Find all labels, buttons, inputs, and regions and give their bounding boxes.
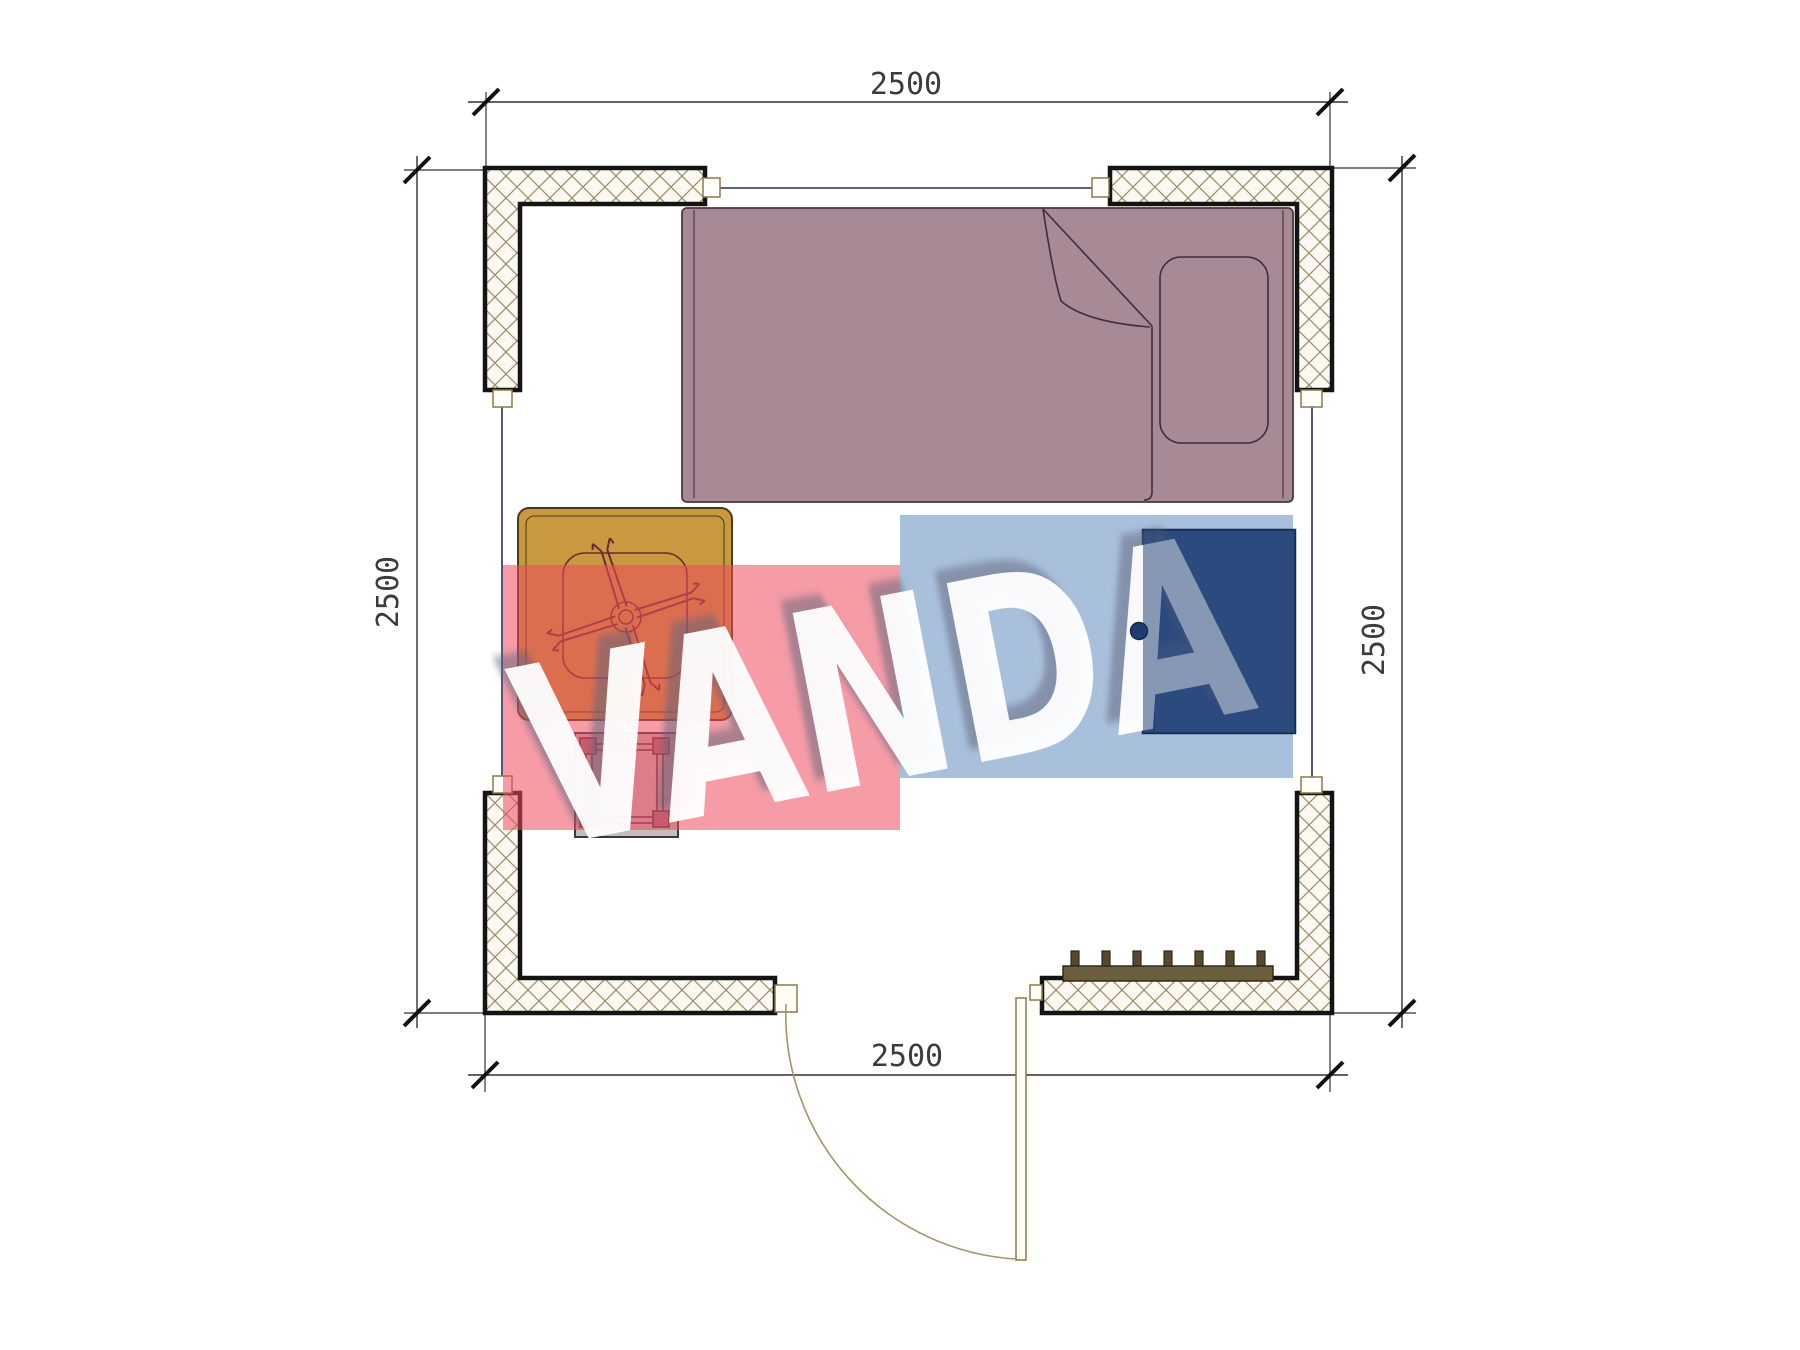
dimension-label-left: 2500 <box>371 556 406 628</box>
floor-plan-drawing: 2500 2500 2500 2500 <box>0 0 1800 1350</box>
bench-peg <box>1071 951 1079 967</box>
bench-peg <box>1102 951 1110 967</box>
door-leaf <box>1016 998 1026 1260</box>
dimension-label-bottom: 2500 <box>871 1039 943 1074</box>
window-top <box>703 178 1109 197</box>
dimension-label-top: 2500 <box>870 67 942 102</box>
bed <box>682 208 1293 502</box>
floor-plan-page: 2500 2500 2500 2500 <box>0 0 1800 1350</box>
dimension-label-right: 2500 <box>1357 604 1392 676</box>
bench-peg <box>1195 951 1203 967</box>
window-right <box>1301 390 1322 793</box>
window-frame <box>703 178 720 197</box>
wall-top-left <box>485 168 705 390</box>
window-frame <box>493 390 512 407</box>
bench-peg <box>1226 951 1234 967</box>
dimension-left: 2500 <box>371 156 483 1028</box>
bench-peg <box>1164 951 1172 967</box>
cabinet-glass-overlay <box>1143 530 1295 733</box>
bed-mattress <box>682 208 1293 502</box>
bench-bar <box>1063 966 1273 981</box>
dimension-bottom: 2500 <box>468 1013 1348 1092</box>
bench-peg <box>1257 951 1265 967</box>
window-frame <box>1301 390 1322 407</box>
coat-rack-bench <box>1063 951 1273 981</box>
bench-peg <box>1133 951 1141 967</box>
cabinet-knob <box>1131 623 1148 640</box>
window-frame <box>1092 178 1109 197</box>
door-jamb-right <box>1030 985 1042 1000</box>
window-frame <box>1301 777 1322 793</box>
dimension-right: 2500 <box>1334 155 1416 1028</box>
dimension-top: 2500 <box>468 67 1348 168</box>
door <box>775 985 1042 1260</box>
